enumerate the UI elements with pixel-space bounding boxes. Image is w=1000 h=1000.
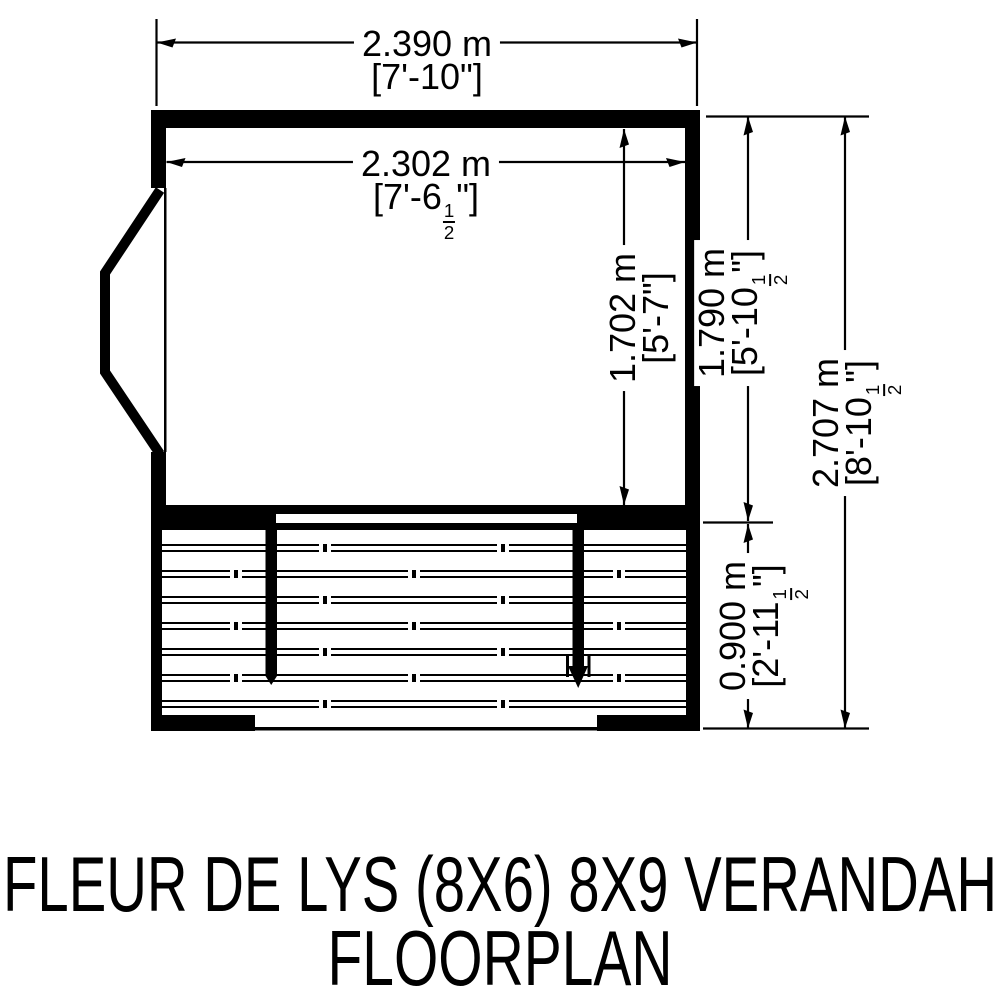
arrow-up: [744, 117, 754, 136]
deck-edge-right: [686, 530, 700, 731]
dim-internal-depth: 1.702 m [5'-7"]: [605, 245, 673, 391]
post-right-tick-left: [566, 654, 569, 677]
arrow-left: [157, 39, 176, 48]
arrow-down: [744, 710, 754, 729]
dim-imperial: [7'-612"]: [361, 180, 491, 243]
arrow-down: [744, 502, 754, 521]
title-block: FLEUR DE LYS (8X6) 8X9 VERANDAH FLOORPLA…: [0, 838, 1000, 1000]
verandah-posts: [266, 530, 591, 688]
fraction: 12: [771, 588, 812, 600]
post-left-tip: [266, 676, 278, 685]
deck-bottom-rail-left: [151, 715, 255, 731]
arrow-down: [841, 710, 851, 729]
dim-imperial: [7'-10"]: [362, 60, 492, 93]
wall-left-lower: [151, 452, 166, 505]
post-right: [573, 530, 585, 668]
post-right-arrow: [568, 666, 588, 688]
arrow-right: [666, 158, 685, 167]
dim-verandah-depth: 0.900 m [2'-1112"]: [715, 553, 813, 699]
post-right-tick-right: [588, 654, 591, 677]
verandah-door-opening: [276, 514, 577, 523]
fraction: 12: [750, 274, 791, 286]
page-title-line2: FLOORPLAN: [328, 914, 673, 1000]
arrow-left: [167, 158, 186, 167]
arrow-down: [620, 486, 630, 505]
dim-imperial: [8'-1012"]: [842, 358, 905, 488]
post-left: [266, 530, 278, 676]
wall-top: [151, 110, 700, 128]
bay-window: [105, 190, 160, 454]
arrow-up: [620, 129, 630, 148]
floorplan-canvas: 2.390 m [7'-10"] 2.302 m [7'-612"] 1.702…: [0, 0, 1000, 1000]
dim-internal-width: 2.302 m [7'-612"]: [353, 146, 499, 244]
dim-overall-depth: 2.707 m [8'-1012"]: [808, 350, 906, 496]
verandah-deck-frame: [151, 530, 700, 731]
dim-imperial: [5'-7"]: [639, 253, 672, 383]
bay-window-glazing-line: [164, 188, 167, 452]
dim-shed-depth: 1.790 m [5'-1012"]: [694, 240, 792, 386]
dim-overall-width: 2.390 m [7'-10"]: [354, 26, 500, 94]
arrow-up: [744, 524, 754, 543]
deck-edge-left: [151, 530, 162, 731]
deck-bottom-rail-right: [597, 715, 700, 731]
dim-imperial: [5'-1012"]: [728, 248, 791, 378]
arrow-up: [841, 117, 851, 136]
arrow-right: [678, 39, 697, 48]
dim-imperial: [2'-1112"]: [749, 561, 812, 691]
wall-left-upper: [151, 128, 166, 188]
fraction: 12: [864, 384, 905, 396]
fraction: 12: [443, 201, 455, 242]
